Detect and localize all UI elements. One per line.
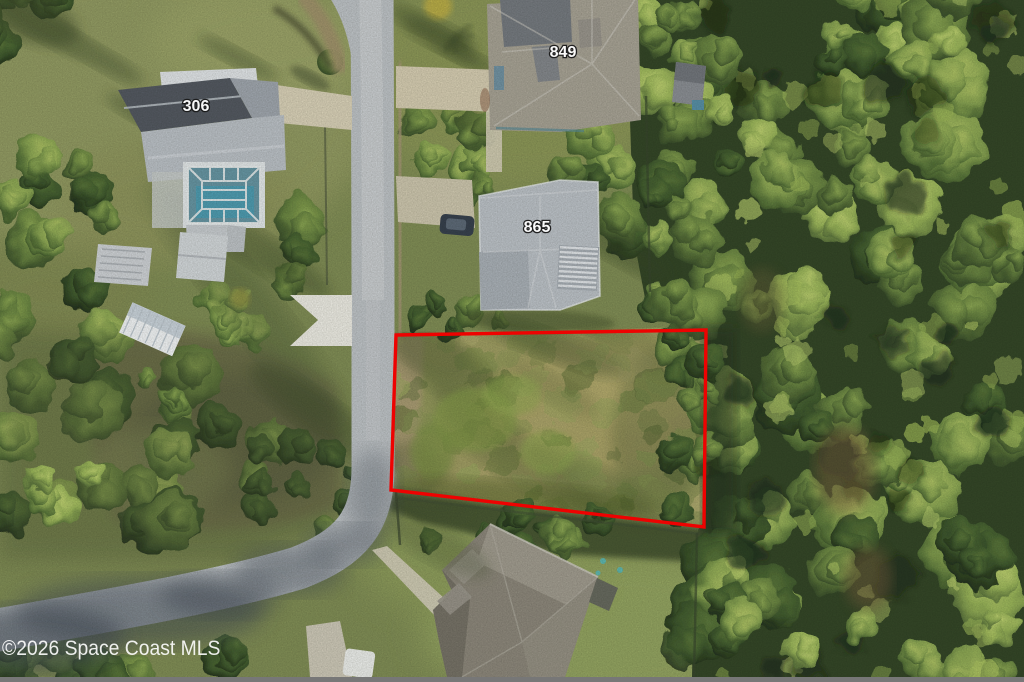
svg-text:©2026 Space Coast MLS: ©2026 Space Coast MLS (2, 636, 220, 660)
svg-text:306: 306 (183, 98, 210, 115)
svg-text:849: 849 (550, 44, 577, 61)
svg-text:865: 865 (524, 219, 551, 236)
